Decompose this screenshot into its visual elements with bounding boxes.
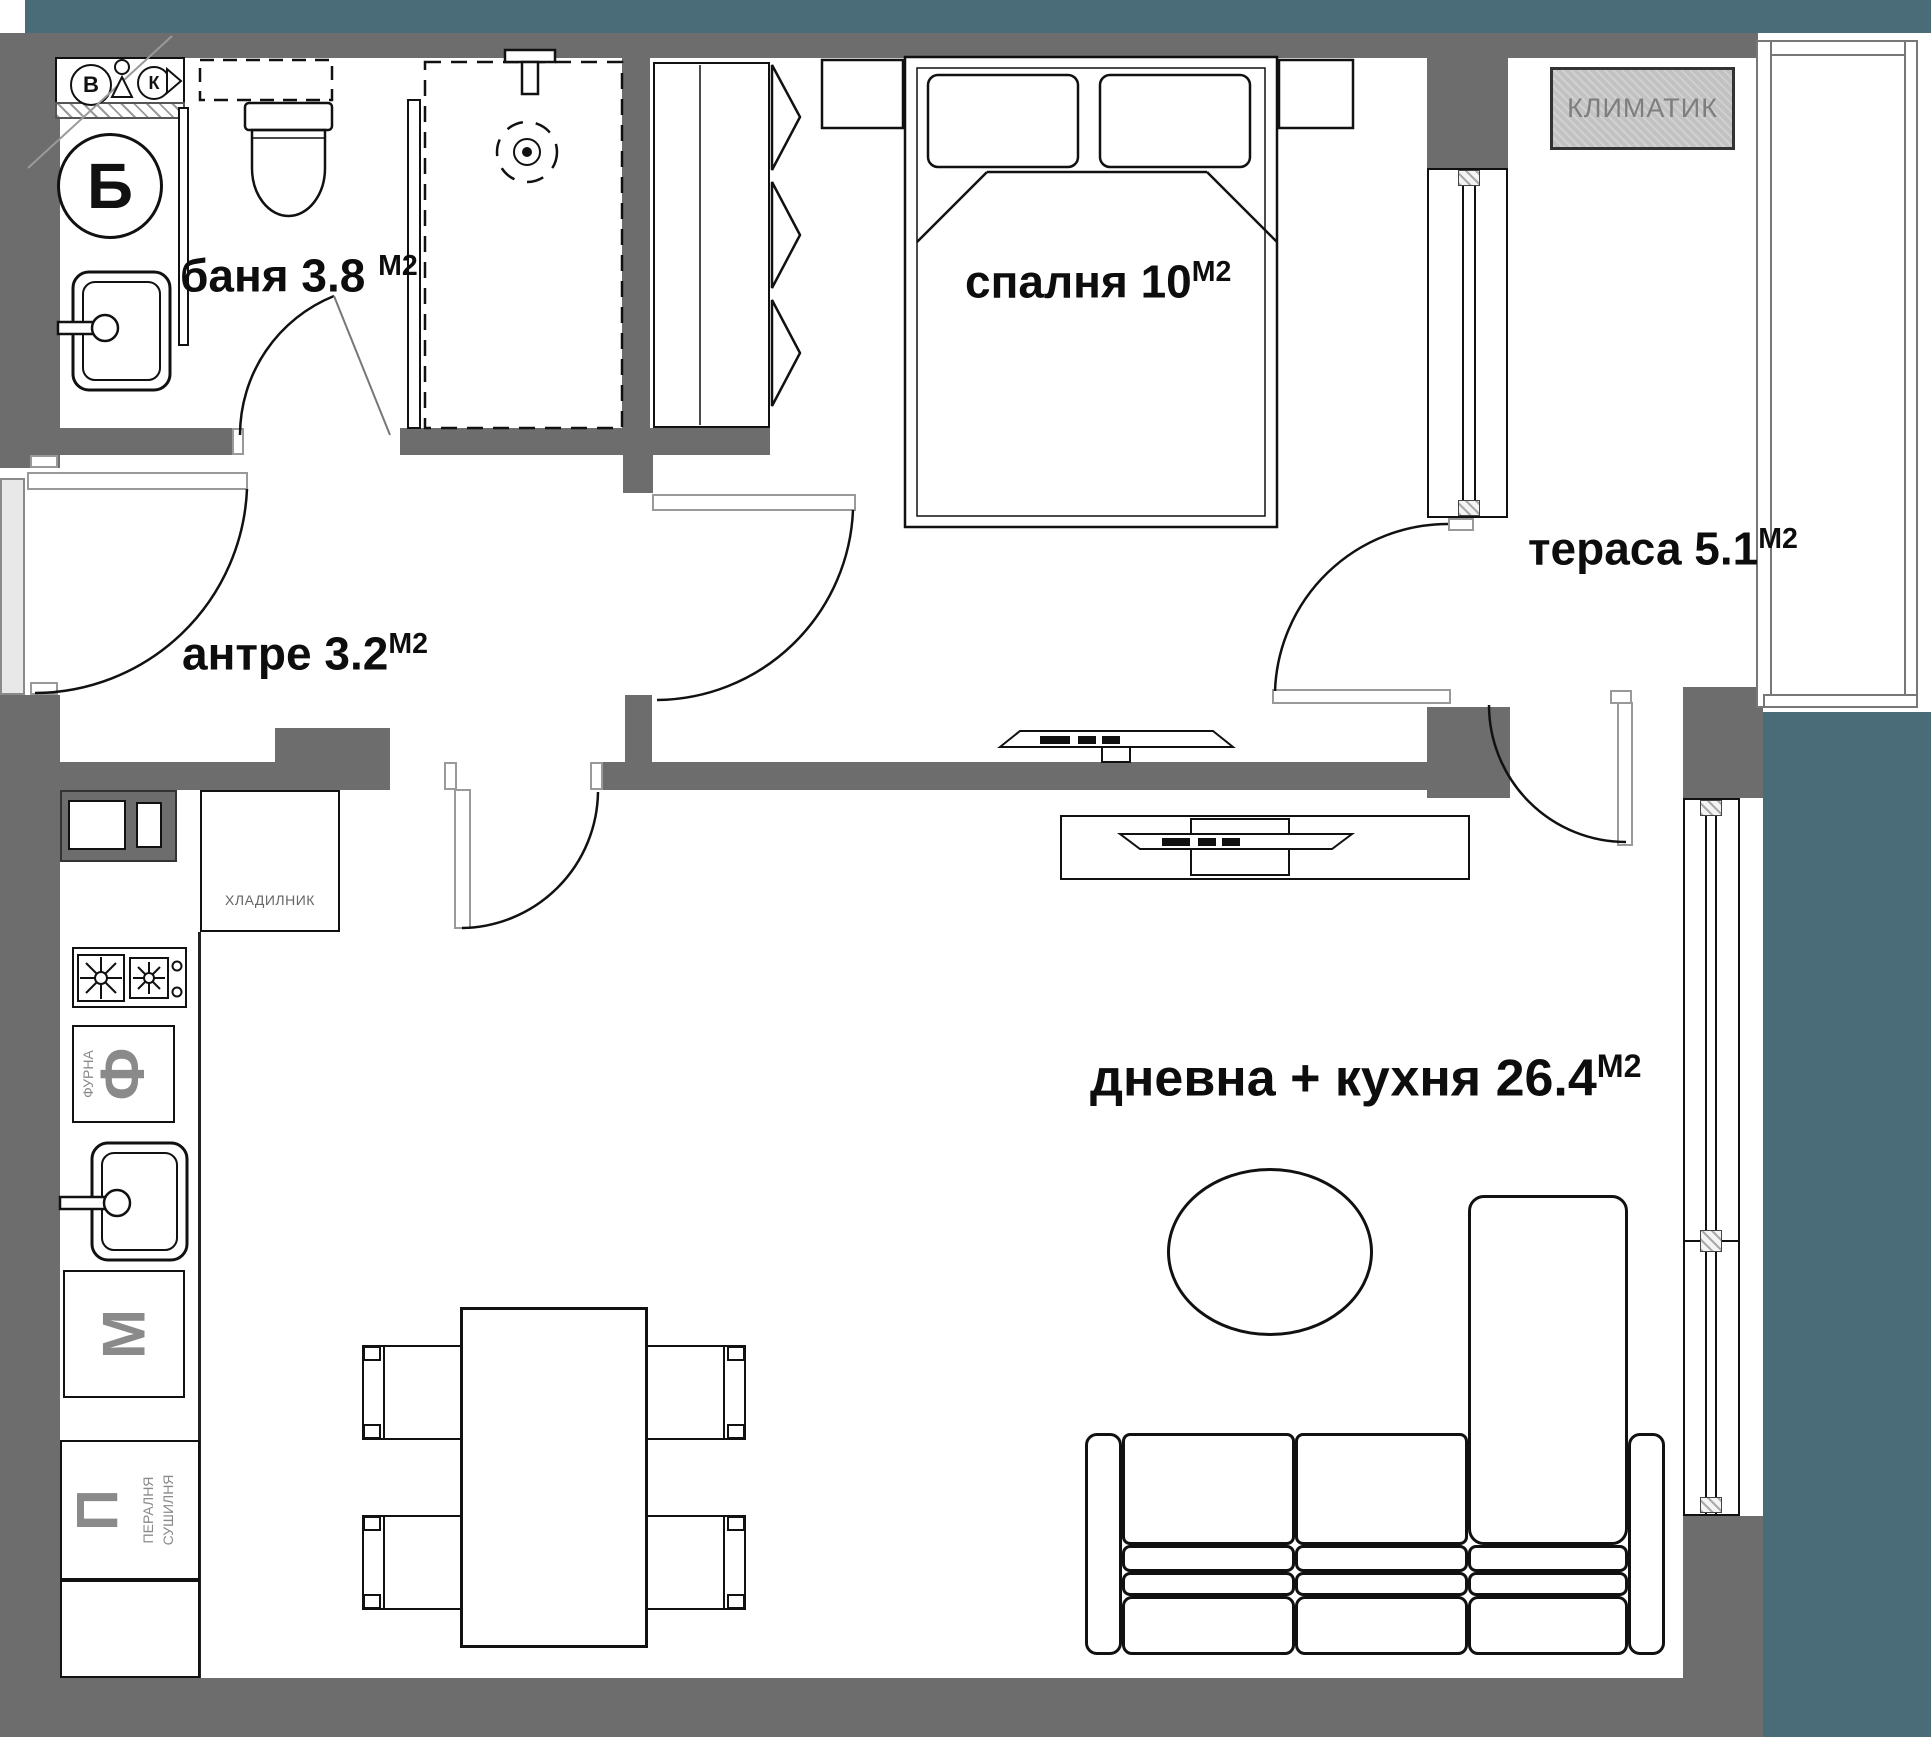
bathroom-partition	[179, 108, 188, 345]
pillow	[928, 75, 1078, 167]
room-label-terrace: тераса 5.1М2	[1528, 525, 1798, 571]
terrace-door-living	[1489, 703, 1632, 845]
kitchen-hob	[78, 955, 182, 1001]
laundry-label-1: ПЕРАЛНЯ	[140, 1477, 156, 1544]
room-label-bedroom: спалня 10М2	[965, 258, 1231, 304]
terrace-door-bedroom	[1273, 524, 1450, 703]
room-label-bathroom: баня 3.8 М2	[180, 252, 418, 298]
wall-chamfer-line	[28, 36, 172, 168]
tv-bedroom	[1000, 731, 1233, 762]
kitchen-sink	[60, 1143, 187, 1260]
oven-letter: Ф	[89, 1048, 158, 1101]
room-label-hall: антре 3.2М2	[182, 630, 428, 676]
shower	[425, 50, 622, 428]
laundry-label-2: СУШИЛНЯ	[160, 1475, 176, 1546]
kitchen-door	[455, 790, 598, 928]
bathroom-door	[240, 296, 390, 435]
floor-plan: В К Б КЛИМАТИК ХЛАДИЛНИК	[0, 0, 1931, 1737]
appliance-m-letter: М	[91, 1309, 158, 1359]
room-label-living: дневна + кухня 26.4М2	[1090, 1050, 1642, 1104]
bathroom-sink	[58, 272, 170, 390]
chair-details	[364, 1347, 744, 1608]
nightstand	[1279, 60, 1353, 128]
person-icon	[112, 60, 181, 97]
laundry-letter: П	[66, 1489, 131, 1531]
wardrobe-doors	[700, 65, 800, 425]
oven-label: ФУРНА	[80, 1049, 96, 1097]
pillow	[1100, 75, 1250, 167]
tv-living	[1120, 834, 1352, 849]
nightstand	[822, 60, 903, 128]
toilet	[200, 60, 332, 216]
bedroom-door	[653, 495, 855, 700]
